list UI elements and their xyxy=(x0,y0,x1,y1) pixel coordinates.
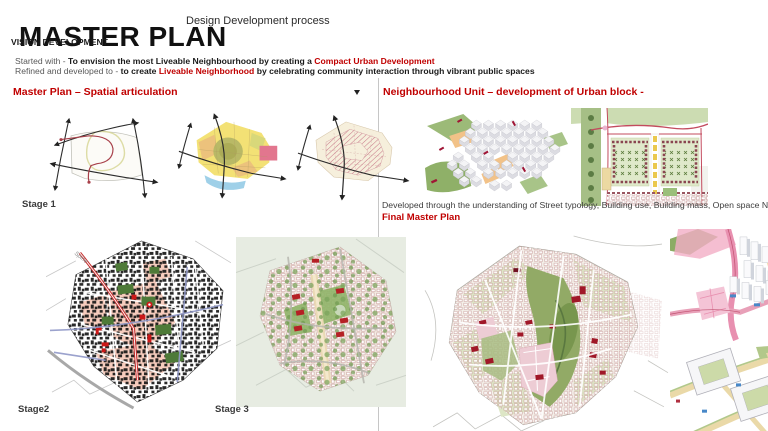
vision-line-1: Started with - To envision the most Live… xyxy=(15,56,435,66)
vision-heading: VISION DEVELOPMENT xyxy=(11,37,108,47)
vision-line2-highlight: Liveable Neighborhood xyxy=(159,66,255,76)
development-caption: Developed through the understanding of S… xyxy=(382,200,768,210)
vision-line1-main: To envision the most Liveable Neighbourh… xyxy=(68,56,314,66)
small-arrow-marker xyxy=(354,90,360,95)
vision-line1-highlight: Compact Urban Development xyxy=(314,56,434,66)
stage1-sketch-landuse xyxy=(175,109,291,212)
vision-line1-prefix: Started with - xyxy=(15,56,68,66)
stage3-label: Stage 3 xyxy=(215,404,249,415)
block-axon-top-image xyxy=(670,229,768,341)
urban-block-plan-image xyxy=(571,108,708,206)
final-master-plan-map xyxy=(423,230,669,431)
block-axon-bottom-image xyxy=(670,345,768,431)
stage1-sketch-density xyxy=(292,109,414,212)
stage2-label: Stage2 xyxy=(18,404,49,415)
stage3-map xyxy=(236,237,406,407)
stage1-sketch-concept xyxy=(45,108,173,212)
vision-line2-tail: by celebrating community interaction thr… xyxy=(254,66,534,76)
left-section-heading: Master Plan – Spatial articulation xyxy=(13,86,178,98)
axon-overview-image xyxy=(423,108,570,205)
vision-line2-main: to create xyxy=(121,66,159,76)
vision-line-2: Refined and developed to - to create Liv… xyxy=(15,66,535,76)
right-section-heading: Neighbourhood Unit – development of Urba… xyxy=(383,86,644,98)
vision-line2-prefix: Refined and developed to - xyxy=(15,66,121,76)
stage1-label: Stage 1 xyxy=(22,199,56,210)
final-masterplan-heading: Final Master Plan xyxy=(382,212,460,223)
stage2-map: Spine xyxy=(46,233,231,414)
masterplan-slide: MASTER PLAN Design Development process V… xyxy=(0,0,768,431)
page-subtitle: Design Development process xyxy=(186,15,330,27)
